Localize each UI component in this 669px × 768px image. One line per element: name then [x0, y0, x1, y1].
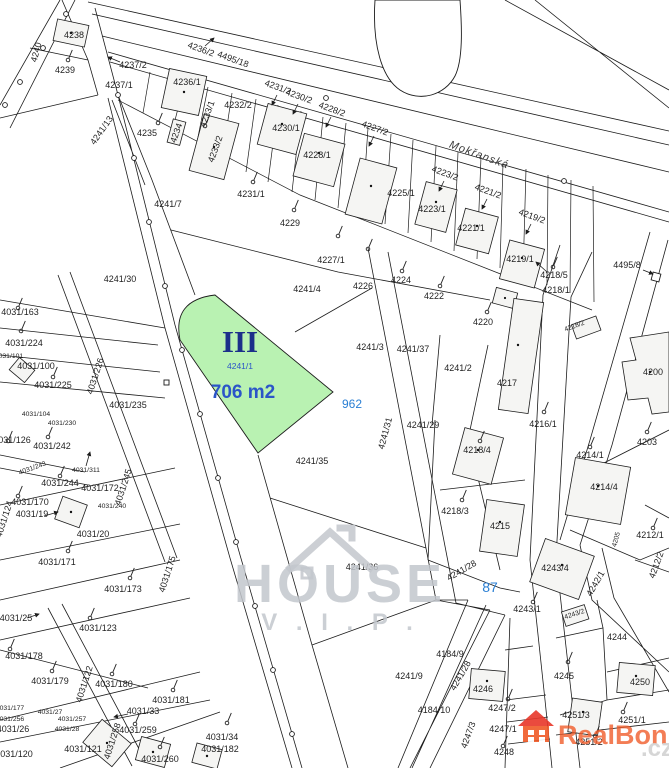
parcel-label: 4031/33 [127, 706, 160, 716]
parcel-label: 4217 [497, 378, 517, 388]
land-use-symbol [398, 261, 410, 273]
parcel-label: 4237/1 [105, 80, 133, 90]
parcel-label: 4218/3 [441, 506, 469, 516]
parcel-label: 4212/1 [636, 530, 664, 540]
parcel-label: 4031/226 [85, 357, 106, 396]
blue-ref-962: 962 [342, 397, 362, 411]
parcel-label: 4218/5 [540, 270, 568, 280]
land-use-symbol [540, 402, 552, 414]
parcel-label: 4241/31 [376, 416, 394, 450]
parcel-label: 4200 [643, 367, 663, 377]
parcel-label: 4031/256 [0, 716, 24, 723]
parcel-label: 4031/170 [11, 497, 49, 507]
blue-ref-87: 87 [482, 579, 498, 595]
parcel-label: 4031/27 [38, 709, 63, 716]
parcel-label: 4031/224 [5, 338, 43, 348]
highlighted-parcel[interactable] [179, 295, 333, 453]
land-use-symbol [643, 422, 655, 434]
parcel-label: 4031/19 [16, 509, 49, 519]
parcel-label: 4031/121 [64, 744, 102, 754]
parcel-label: 4235 [137, 128, 157, 138]
parcel-label: 4031/173 [104, 584, 142, 594]
parcel-label: 4495/8 [613, 260, 641, 270]
parcel-label: 4218/1 [542, 285, 570, 295]
land-use-symbol [649, 518, 661, 530]
parcel-label: 4184/9 [436, 649, 464, 659]
street-name: Mokřanská [447, 139, 510, 172]
parcel-label: 4214/4 [590, 482, 618, 492]
parcel-label: 4031/235 [109, 400, 147, 410]
parcel-label: 4241/37 [397, 344, 430, 354]
parcel-label: 4184/10 [418, 705, 451, 715]
parcel-label: 4031/20 [77, 529, 110, 539]
parcel-label: 4031/124 [0, 500, 15, 539]
parcel-label: 4222 [424, 291, 444, 301]
parcel-label: 4031/244 [41, 478, 79, 488]
parcel-label: 4031/123 [79, 623, 117, 633]
parcel-label: 4031/181 [152, 695, 190, 705]
parcel-label: 4241/35 [296, 456, 329, 466]
parcel-label: 4031/120 [0, 749, 33, 759]
parcel-label: 4218/4 [463, 445, 491, 455]
parcel-label: 4031/182 [201, 744, 239, 754]
parcel-label: 4229 [280, 218, 300, 228]
realbonus-tld-text: .cz [641, 735, 669, 762]
parcel-label: 4215 [490, 521, 510, 531]
land-use-symbol [483, 302, 495, 314]
parcel-label: 4031/175 [157, 555, 178, 594]
parcel-label: 4031/34 [206, 732, 239, 742]
parcel-label: 4241/28 [445, 558, 478, 583]
parcel-label: 4219/2 [517, 207, 546, 226]
land-use-symbol [364, 239, 376, 251]
parcel-label: 4031/28 [55, 726, 80, 733]
parcel-label: 4245 [554, 671, 574, 681]
parcel-label: 4241/4 [293, 284, 321, 294]
parcel-label: 4031/172 [81, 483, 119, 493]
parcel-label: 4223/2 [430, 164, 459, 183]
land-use-symbol [436, 276, 448, 288]
highlight-roman-numeral: III [222, 324, 258, 359]
land-use-symbol [17, 321, 29, 333]
land-use-symbol [458, 490, 470, 502]
parcel-label: 4241/13 [88, 114, 115, 146]
parcel-label: 4251/3 [562, 710, 590, 720]
parcel-label: 4219/1 [506, 254, 534, 264]
parcel-label: 4241/29 [407, 420, 440, 430]
parcel-label: 4250 [630, 677, 650, 687]
parcel-label: 4247/1 [489, 724, 517, 734]
watermark-vip-text: V . I . P . [261, 609, 419, 636]
parcel-label: 4230/1 [272, 123, 300, 133]
parcel-label: 4232/2 [224, 100, 252, 110]
parcel-label: 4031/101 [0, 353, 23, 360]
land-use-symbol [564, 652, 576, 664]
parcel-label: 4248 [494, 747, 514, 757]
parcel-label: 4226 [353, 281, 373, 291]
land-use-symbol [290, 200, 302, 212]
parcel-label: 4031/25 [0, 613, 32, 623]
parcel-label: 4228/1 [303, 150, 331, 160]
parcel-label: 4031/225 [34, 380, 72, 390]
parcel-label: 4241/7 [154, 199, 182, 209]
parcel-label: 4243/4 [541, 563, 569, 573]
parcel-label: 4239 [55, 65, 75, 75]
parcel-label: 4031/171 [38, 557, 76, 567]
cadastral-map: 4240423842394237/24237/14236/24236/14495… [0, 0, 669, 768]
parcel-label: 4495/18 [216, 49, 250, 70]
parcel-label: 4203 [637, 437, 657, 447]
parcel-label: 4031/178 [5, 651, 43, 661]
parcel-label: 4230/2 [284, 87, 313, 106]
parcel-label: 4225/1 [387, 188, 415, 198]
parcel-label: 4240 [29, 41, 44, 63]
highlight-area-label: 706 m2 [211, 382, 275, 403]
land-use-symbol [549, 257, 561, 269]
parcel-label: 4244 [607, 632, 627, 642]
parcel-label: 4237/2 [119, 60, 147, 70]
parcel-labels: 4240423842394237/24237/14236/24236/14495… [0, 30, 666, 764]
land-use-symbol [169, 680, 181, 692]
parcel-label: 4221/2 [473, 182, 502, 201]
realbonus-house-icon [518, 710, 554, 742]
land-use-symbol [529, 592, 541, 604]
parcel-label: 4241/2 [444, 363, 472, 373]
land-use-symbol [6, 639, 18, 651]
parcel-label: 4224 [391, 275, 411, 285]
parcel-label: 4031/311 [72, 467, 100, 474]
land-use-symbol [223, 713, 235, 725]
land-use-symbol [108, 664, 120, 676]
parcel-label: 4223/1 [418, 204, 446, 214]
parcel-label: 4031/180 [95, 679, 133, 689]
parcel-label: 4241/3 [356, 342, 384, 352]
land-use-symbol [154, 113, 166, 125]
parcel-label: 4214/1 [576, 450, 604, 460]
cadastral-map-viewport[interactable]: 4240423842394237/24237/14236/24236/14495… [0, 0, 669, 768]
parcel-label: 4031/100 [17, 361, 55, 371]
parcel-label: 4031/179 [31, 676, 69, 686]
parcel-label: 4031/259 [119, 725, 157, 735]
parcel-label: 4236/2 [186, 40, 215, 59]
parcel-label: 4031/240 [98, 503, 127, 510]
watermark-house-text: HOUSE [234, 554, 446, 614]
parcel-label: 4031/104 [22, 411, 51, 418]
parcel-label: 4221/1 [457, 223, 485, 233]
parcel-label: 4031/257 [58, 716, 87, 723]
parcel-label: 4227/1 [317, 255, 345, 265]
parcel-label: 4243/1 [513, 604, 541, 614]
parcel-label: 4238 [64, 30, 84, 40]
parcel-label: 4241/9 [395, 671, 423, 681]
land-use-symbol [64, 50, 76, 62]
parcel-label: 4247/2 [488, 703, 516, 713]
parcel-label: 4236/1 [173, 77, 201, 87]
land-use-symbol [619, 702, 631, 714]
parcel-label: 4216/1 [529, 419, 557, 429]
land-use-symbol [504, 689, 516, 701]
parcel-label: 4220 [473, 317, 493, 327]
buildings [9, 19, 669, 768]
parcel-label: 4031/242 [33, 441, 71, 451]
parcel-label: 4241/30 [104, 274, 137, 284]
parcel-label: 4247/3 [459, 720, 478, 749]
parcel-label: 4241/28 [448, 659, 473, 692]
parcel-label: 4246 [473, 684, 493, 694]
parcel-label: 4031/260 [141, 754, 179, 764]
boundary-bulge [374, 0, 461, 96]
land-use-symbol [44, 427, 56, 439]
highlight-parcel-number: 4241/1 [227, 361, 253, 371]
land-use-symbol [334, 226, 346, 238]
parcel-label: 4031/26 [0, 724, 29, 734]
parcel-label: 4205 [611, 531, 622, 548]
parcel-label: 4031/126 [0, 435, 31, 445]
parcel-label: 4231/1 [237, 189, 265, 199]
parcel-label: 4031/230 [48, 420, 77, 427]
parcel-label: 4031/177 [0, 705, 24, 712]
